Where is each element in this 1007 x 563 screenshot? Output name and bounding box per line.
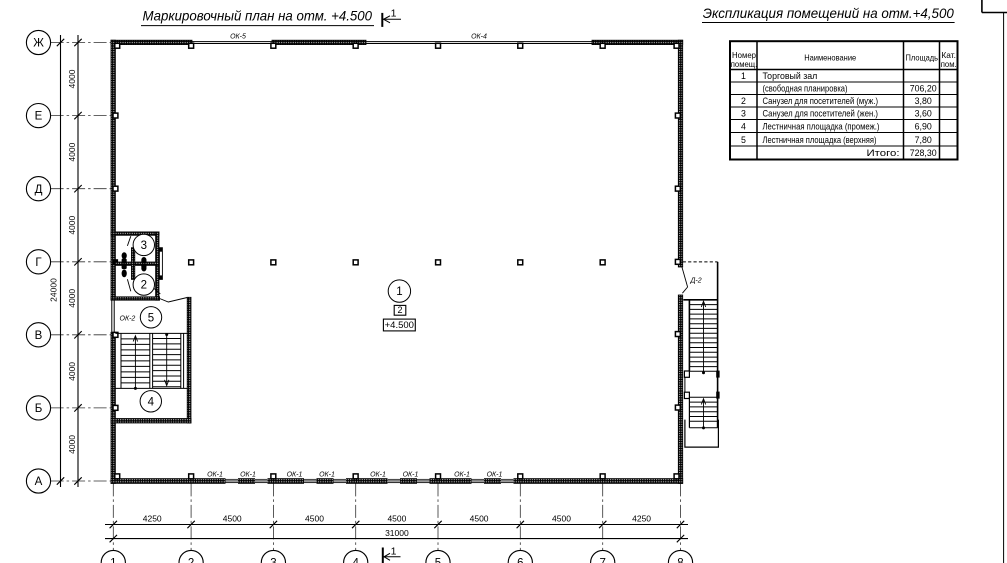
svg-text:7: 7 [599,558,605,563]
svg-text:4: 4 [352,558,359,563]
svg-text:ОК-4: ОК-4 [471,34,487,41]
svg-text:Торговый зал: Торговый зал [763,71,818,81]
svg-text:Ж: Ж [33,38,44,50]
svg-text:В: В [35,330,43,342]
svg-text:3: 3 [741,108,746,118]
svg-text:4500: 4500 [223,514,242,524]
svg-text:Лестничная площадка (промеж.): Лестничная площадка (промеж.) [763,121,880,131]
svg-text:4000: 4000 [67,435,77,454]
svg-text:ОК-1: ОК-1 [370,471,386,478]
svg-text:4500: 4500 [305,514,324,524]
svg-text:2: 2 [741,96,746,106]
svg-text:Номер: Номер [732,51,756,60]
svg-text:4250: 4250 [632,514,651,524]
svg-text:ОК-1: ОК-1 [487,471,503,478]
svg-text:ОК-5: ОК-5 [230,34,246,41]
svg-text:А: А [35,476,43,488]
svg-text:728,30: 728,30 [910,148,937,158]
svg-text:Наименование: Наименование [804,53,856,63]
svg-text:пом.: пом. [941,60,957,69]
svg-text:3,80: 3,80 [915,96,932,106]
svg-text:Итого:: Итого: [867,148,900,158]
svg-text:1: 1 [110,558,116,563]
svg-text:1: 1 [396,286,402,298]
svg-text:24000: 24000 [48,278,58,302]
svg-text:ОК-1: ОК-1 [319,471,335,478]
svg-text:5: 5 [148,312,154,324]
svg-text:Д-2: Д-2 [690,278,702,285]
svg-text:4500: 4500 [552,514,571,524]
svg-text:4000: 4000 [67,362,77,381]
svg-text:помещ.: помещ. [731,60,758,69]
svg-text:Г: Г [35,257,42,269]
svg-text:4000: 4000 [67,142,77,161]
svg-text:4000: 4000 [67,69,77,88]
svg-text:31000: 31000 [385,528,409,538]
svg-text:6,90: 6,90 [915,121,932,131]
svg-text:1: 1 [741,71,746,81]
svg-text:ОК-1: ОК-1 [207,471,223,478]
svg-text:Площадь: Площадь [906,53,939,63]
svg-text:6: 6 [517,558,523,563]
svg-text:1: 1 [391,545,397,557]
svg-text:8: 8 [677,558,683,563]
svg-text:4: 4 [148,396,155,408]
svg-text:5: 5 [435,558,441,563]
svg-text:(свободная планировка): (свободная планировка) [763,83,848,93]
svg-text:Д: Д [35,184,43,196]
svg-text:4000: 4000 [67,289,77,308]
svg-text:Экспликация помещений на отм.+: Экспликация помещений на отм.+4,500 [703,5,954,21]
svg-text:ОК-2: ОК-2 [120,316,136,323]
svg-text:4500: 4500 [470,514,489,524]
svg-text:Б: Б [35,403,43,415]
svg-text:3: 3 [141,240,147,252]
svg-text:2: 2 [188,558,194,563]
svg-text:1: 1 [391,8,397,20]
svg-text:ОК-1: ОК-1 [287,471,303,478]
svg-text:4: 4 [741,121,746,131]
svg-text:7,80: 7,80 [915,135,932,145]
svg-text:ОК-1: ОК-1 [403,471,419,478]
svg-text:Маркировочный план на отм. +4.: Маркировочный план на отм. +4.500 [143,7,373,23]
svg-text:Лестничная площадка (верхняя): Лестничная площадка (верхняя) [763,135,877,145]
svg-text:4250: 4250 [143,514,162,524]
svg-text:Кат.: Кат. [941,51,956,60]
svg-text:Е: Е [35,111,43,123]
svg-text:5: 5 [741,135,746,145]
svg-text:Санузел для посетителей (муж.): Санузел для посетителей (муж.) [763,96,879,106]
svg-text:4000: 4000 [67,215,77,234]
svg-text:Санузел для посетителей (жен.): Санузел для посетителей (жен.) [763,108,879,118]
svg-text:706,20: 706,20 [910,83,937,93]
svg-text:2: 2 [397,305,402,315]
svg-text:4500: 4500 [387,514,406,524]
svg-text:3: 3 [270,558,276,563]
svg-text:+4.500: +4.500 [385,320,414,331]
svg-text:2: 2 [141,280,147,292]
svg-text:3,60: 3,60 [915,108,932,118]
svg-text:ОК-1: ОК-1 [240,471,256,478]
svg-text:ОК-1: ОК-1 [454,471,470,478]
